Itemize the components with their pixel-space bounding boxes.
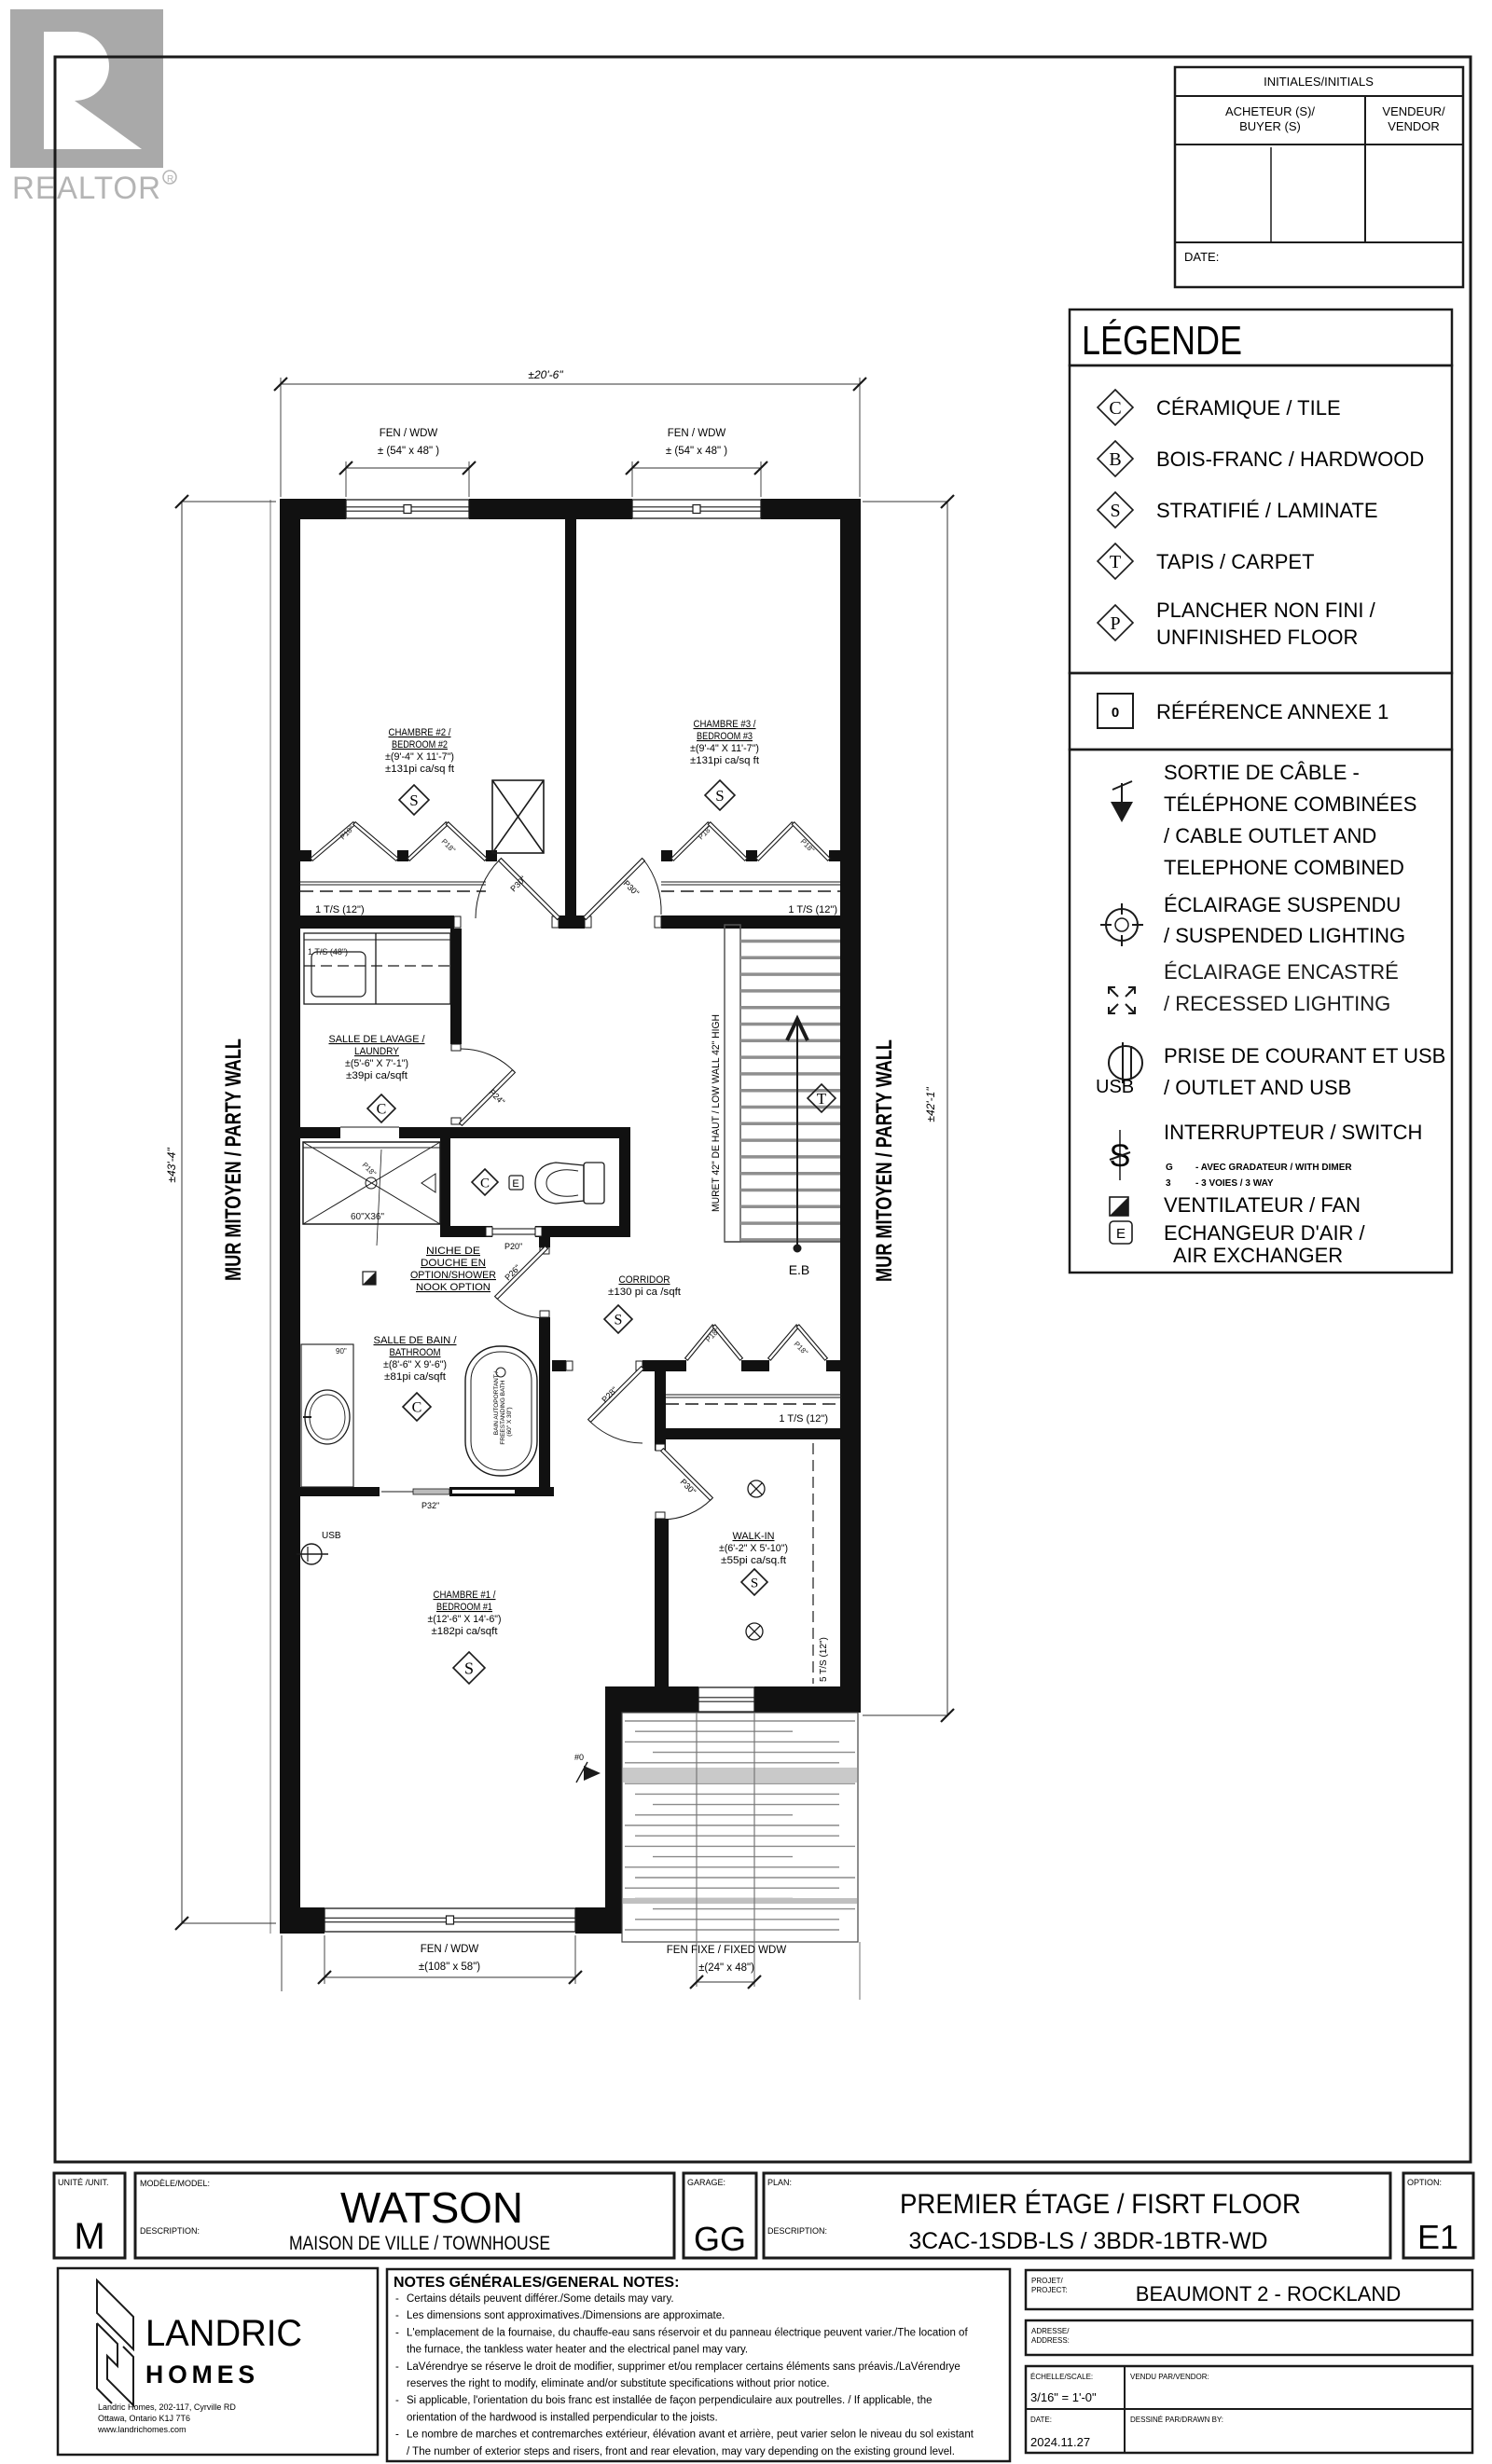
svg-text:CORRIDOR: CORRIDOR — [619, 1274, 670, 1286]
svg-text:5 T/S (12"): 5 T/S (12") — [819, 1637, 829, 1682]
svg-text:DOUCHE EN: DOUCHE EN — [421, 1258, 486, 1269]
svg-text:0: 0 — [1112, 705, 1119, 721]
svg-text:LANDRIC: LANDRIC — [145, 2313, 302, 2354]
svg-text:FEN / WDW: FEN / WDW — [380, 428, 438, 439]
svg-text:/ CABLE OUTLET AND: / CABLE OUTLET AND — [1164, 824, 1376, 847]
svg-text:-: - — [395, 2430, 399, 2441]
svg-text:Ottawa, Ontario K1J 7T6: Ottawa, Ontario K1J 7T6 — [98, 2414, 190, 2423]
svg-text:RÉFÉRENCE ANNEXE 1: RÉFÉRENCE ANNEXE 1 — [1156, 700, 1388, 723]
svg-text:Landric Homes, 202-117, Cyrvil: Landric Homes, 202-117, Cyrville RD — [98, 2402, 236, 2412]
svg-text:MURET 42" DE HAUT / LOW WALL 4: MURET 42" DE HAUT / LOW WALL 42" HIGH — [711, 1014, 722, 1212]
svg-text:/ SUSPENDED LIGHTING: / SUSPENDED LIGHTING — [1164, 924, 1405, 947]
svg-text:G: G — [1166, 1163, 1173, 1173]
svg-text:VENDOR: VENDOR — [1388, 119, 1440, 133]
svg-text:FREESTANDING BATH: FREESTANDING BATH — [500, 1380, 506, 1444]
svg-text:±(108" x 58"): ±(108" x 58") — [419, 1962, 480, 1973]
svg-text:-: - — [395, 2293, 399, 2305]
svg-text:±182pi ca/sqft: ±182pi ca/sqft — [432, 1626, 498, 1637]
svg-text:DESSINÉ PAR/DRAWN BY:: DESSINÉ PAR/DRAWN BY: — [1130, 2416, 1223, 2424]
svg-text:AIR EXCHANGER: AIR EXCHANGER — [1173, 1244, 1343, 1267]
svg-text:/ The number of exterior steps: / The number of exterior steps and riser… — [407, 2446, 955, 2457]
svg-text:/ RECESSED LIGHTING: / RECESSED LIGHTING — [1164, 992, 1390, 1015]
svg-text:VENTILATEUR / FAN: VENTILATEUR / FAN — [1164, 1193, 1361, 1217]
svg-text:BEDROOM #3: BEDROOM #3 — [697, 731, 753, 742]
svg-text:±20'-6": ±20'-6" — [528, 368, 563, 381]
svg-text:-: - — [395, 2361, 399, 2373]
svg-text:SORTIE DE CÂBLE -: SORTIE DE CÂBLE - — [1164, 761, 1360, 784]
svg-text:-: - — [395, 2310, 399, 2321]
svg-text:GG: GG — [694, 2220, 746, 2258]
svg-text:M: M — [74, 2216, 104, 2257]
svg-text:T: T — [1110, 552, 1121, 572]
svg-text:NOTES GÉNÉRALES/GENERAL NOTES:: NOTES GÉNÉRALES/GENERAL NOTES: — [394, 2273, 679, 2291]
svg-text:HOMES: HOMES — [145, 2361, 259, 2388]
svg-text:OPTION/SHOWER: OPTION/SHOWER — [410, 1270, 496, 1281]
svg-text:±131pi ca/sq ft: ±131pi ca/sq ft — [385, 764, 454, 775]
svg-text:2024.11.27: 2024.11.27 — [1030, 2435, 1090, 2449]
svg-text:orientation of the hardwood is: orientation of the hardwood is installed… — [407, 2412, 718, 2423]
svg-text:TÉLÉPHONE COMBINÉES: TÉLÉPHONE COMBINÉES — [1164, 792, 1416, 816]
svg-text:S: S — [615, 1313, 623, 1328]
svg-text:1 T/S (12"): 1 T/S (12") — [788, 904, 837, 915]
svg-text:1 T/S (48"): 1 T/S (48") — [308, 947, 348, 957]
svg-text:E: E — [512, 1178, 518, 1190]
svg-text:USB: USB — [322, 1531, 341, 1541]
svg-text:C: C — [480, 1176, 490, 1191]
svg-text:±(9'-4" X 11'-7"): ±(9'-4" X 11'-7") — [690, 743, 759, 754]
svg-text:OPTION:: OPTION: — [1407, 2178, 1442, 2187]
svg-text:±81pi ca/sqft: ±81pi ca/sqft — [384, 1371, 446, 1383]
svg-text:PREMIER ÉTAGE / FISRT FLOOR: PREMIER ÉTAGE / FISRT FLOOR — [900, 2189, 1301, 2220]
svg-text:#0: #0 — [574, 1753, 584, 1762]
svg-text:CHAMBRE #3 /: CHAMBRE #3 / — [694, 719, 757, 730]
svg-text:ECHANGEUR D'AIR /: ECHANGEUR D'AIR / — [1164, 1221, 1366, 1245]
svg-text:DESCRIPTION:: DESCRIPTION: — [767, 2226, 827, 2236]
svg-text:INITIALES/INITIALS: INITIALES/INITIALS — [1264, 75, 1374, 89]
svg-text:ACHETEUR (S)/: ACHETEUR (S)/ — [1225, 104, 1315, 118]
svg-text:BOIS-FRANC / HARDWOOD: BOIS-FRANC / HARDWOOD — [1156, 447, 1424, 471]
svg-text:the furnace, the tankless wate: the furnace, the tankless water heater a… — [407, 2345, 748, 2356]
svg-text:reserves the right to modify,: reserves the right to modify, eliminate … — [407, 2378, 830, 2389]
svg-text:±(9'-4" X 11'-7"): ±(9'-4" X 11'-7") — [385, 751, 454, 763]
svg-text:LÉGENDE: LÉGENDE — [1082, 318, 1242, 364]
svg-text:±(6'-2" X 5'-10"): ±(6'-2" X 5'-10") — [719, 1543, 788, 1554]
svg-text:C: C — [412, 1400, 422, 1416]
svg-text:MAISON DE VILLE / TOWNHOUSE: MAISON DE VILLE / TOWNHOUSE — [289, 2233, 550, 2254]
svg-text:LaVérendrye se réserve le droi: LaVérendrye se réserve le droit de modif… — [407, 2361, 960, 2373]
svg-text:1 T/S (12"): 1 T/S (12") — [315, 904, 365, 915]
svg-text:FEN FIXE / FIXED WDW: FEN FIXE / FIXED WDW — [667, 1945, 787, 1956]
svg-text:ÉCHELLE/SCALE:: ÉCHELLE/SCALE: — [1030, 2373, 1093, 2381]
svg-text:1 T/S (12"): 1 T/S (12") — [779, 1413, 828, 1425]
svg-text:MUR MITOYEN / PARTY WALL: MUR MITOYEN / PARTY WALL — [221, 1039, 246, 1281]
svg-text:- AVEC GRADATEUR / WITH DIMER: - AVEC GRADATEUR / WITH DIMER — [1195, 1163, 1352, 1173]
svg-text:BEDROOM #1: BEDROOM #1 — [436, 1602, 492, 1613]
svg-text:UNFINISHED FLOOR: UNFINISHED FLOOR — [1156, 626, 1358, 649]
svg-text:L'emplacement de la fournaise,: L'emplacement de la fournaise, du chauff… — [407, 2327, 968, 2338]
svg-text:DATE:: DATE: — [1184, 250, 1219, 264]
svg-text:C: C — [1109, 398, 1121, 419]
svg-text:FEN / WDW: FEN / WDW — [668, 428, 726, 439]
svg-text:-: - — [395, 2327, 399, 2338]
svg-text:± (54" x 48" ): ± (54" x 48" ) — [666, 446, 727, 457]
svg-text:- 3 VOIES / 3 WAY: - 3 VOIES / 3 WAY — [1195, 1178, 1274, 1189]
svg-text:±43'-4": ±43'-4" — [165, 1148, 178, 1183]
svg-text:TELEPHONE COMBINED: TELEPHONE COMBINED — [1164, 856, 1404, 879]
svg-text:S: S — [409, 792, 418, 809]
svg-text:GARAGE:: GARAGE: — [687, 2178, 725, 2187]
svg-text:VENDU PAR/VENDOR:: VENDU PAR/VENDOR: — [1130, 2373, 1209, 2381]
svg-text:B: B — [1109, 449, 1121, 470]
svg-text:LAUNDRY: LAUNDRY — [354, 1046, 400, 1057]
svg-text:PROJECT:: PROJECT: — [1031, 2286, 1068, 2294]
svg-text:± (54" x 48" ): ± (54" x 48" ) — [378, 446, 439, 457]
svg-text:BEDROOM #2: BEDROOM #2 — [392, 739, 448, 750]
svg-text:WALK-IN: WALK-IN — [733, 1531, 775, 1542]
svg-text:PLAN:: PLAN: — [767, 2178, 792, 2187]
svg-text:-: - — [395, 2395, 399, 2406]
svg-text:±(24" x 48"): ±(24" x 48") — [698, 1962, 754, 1974]
svg-text:NICHE DE: NICHE DE — [426, 1246, 480, 1257]
svg-text:FEN / WDW: FEN / WDW — [421, 1944, 479, 1955]
svg-text:INTERRUPTEUR / SWITCH: INTERRUPTEUR / SWITCH — [1164, 1121, 1422, 1144]
svg-text:BUYER (S): BUYER (S) — [1239, 119, 1301, 133]
svg-text:±(5'-6" X 7'-1"): ±(5'-6" X 7'-1") — [345, 1058, 408, 1069]
svg-text:UNITÉ /UNIT.: UNITÉ /UNIT. — [58, 2178, 109, 2187]
svg-text:S: S — [715, 787, 724, 805]
svg-text:S: S — [1110, 501, 1120, 521]
svg-text:E.B: E.B — [789, 1262, 810, 1277]
svg-text:PROJET/: PROJET/ — [1031, 2277, 1064, 2285]
svg-text:3CAC-1SDB-LS / 3BDR-1BTR-WD: 3CAC-1SDB-LS / 3BDR-1BTR-WD — [909, 2228, 1268, 2254]
svg-text:60"X36": 60"X36" — [351, 1212, 384, 1222]
svg-text:P20": P20" — [504, 1242, 522, 1251]
svg-text:T: T — [817, 1090, 827, 1108]
svg-text:±(12'-6" X 14'-6"): ±(12'-6" X 14'-6") — [428, 1614, 502, 1625]
svg-text:(60" X 30"): (60" X 30") — [506, 1407, 513, 1436]
svg-text:CHAMBRE #1 /: CHAMBRE #1 / — [434, 1590, 497, 1601]
svg-text:SALLE DE LAVAGE /: SALLE DE LAVAGE / — [329, 1034, 426, 1045]
svg-text:S: S — [464, 1659, 474, 1677]
svg-text:±42'-1": ±42'-1" — [924, 1087, 937, 1122]
svg-text:www.landrichomes.com: www.landrichomes.com — [97, 2425, 186, 2434]
svg-text:PLANCHER NON FINI /: PLANCHER NON FINI / — [1156, 599, 1376, 622]
svg-text:PRISE DE COURANT ET USB: PRISE DE COURANT ET USB — [1164, 1044, 1445, 1067]
svg-text:P: P — [1110, 613, 1120, 634]
svg-text:±39pi ca/sqft: ±39pi ca/sqft — [346, 1070, 408, 1081]
svg-text:CÉRAMIQUE / TILE: CÉRAMIQUE / TILE — [1156, 396, 1341, 420]
svg-text:SALLE DE BAIN /: SALLE DE BAIN / — [374, 1335, 458, 1346]
svg-text:3/16" = 1'-0": 3/16" = 1'-0" — [1030, 2390, 1097, 2404]
svg-text:MODÈLE/MODEL:: MODÈLE/MODEL: — [140, 2179, 210, 2188]
svg-text:ADDRESS:: ADDRESS: — [1031, 2336, 1070, 2345]
svg-text:E1: E1 — [1417, 2218, 1458, 2256]
svg-text:ÉCLAIRAGE SUSPENDU: ÉCLAIRAGE SUSPENDU — [1164, 893, 1401, 916]
svg-text:STRATIFIÉ / LAMINATE: STRATIFIÉ / LAMINATE — [1156, 499, 1378, 522]
svg-text:Si applicable, l'orientation d: Si applicable, l'orientation du bois fra… — [407, 2395, 932, 2406]
svg-text:C: C — [377, 1102, 387, 1118]
svg-text:P32": P32" — [421, 1501, 439, 1510]
svg-text:90": 90" — [336, 1347, 347, 1356]
svg-text:BATHROOM: BATHROOM — [390, 1347, 441, 1358]
svg-text:BEAUMONT 2 - ROCKLAND: BEAUMONT 2 - ROCKLAND — [1136, 2282, 1401, 2306]
svg-text:REALTOR: REALTOR — [12, 171, 161, 206]
svg-text:±131pi ca/sq ft: ±131pi ca/sq ft — [690, 755, 759, 766]
svg-text:WATSON: WATSON — [340, 2183, 523, 2232]
svg-text:DESCRIPTION:: DESCRIPTION: — [140, 2226, 200, 2236]
svg-text:E: E — [1116, 1226, 1126, 1242]
svg-text:±130 pi ca /sqft: ±130 pi ca /sqft — [608, 1287, 681, 1298]
svg-text:BAIN AUTOPORTANT /: BAIN AUTOPORTANT / — [493, 1371, 500, 1436]
svg-text:USB: USB — [1096, 1077, 1134, 1097]
svg-text:Les dimensions sont approximat: Les dimensions sont approximatives./Dime… — [407, 2310, 725, 2321]
svg-text:ADRESSE/: ADRESSE/ — [1031, 2327, 1070, 2335]
svg-text:NOOK OPTION: NOOK OPTION — [416, 1282, 490, 1293]
svg-text:R: R — [167, 174, 173, 185]
svg-text:MUR MITOYEN / PARTY WALL: MUR MITOYEN / PARTY WALL — [872, 1039, 897, 1282]
svg-text:S: S — [751, 1576, 758, 1590]
svg-text:DATE:: DATE: — [1030, 2416, 1052, 2424]
svg-text:VENDEUR/: VENDEUR/ — [1382, 104, 1445, 118]
svg-text:CHAMBRE #2 /: CHAMBRE #2 / — [389, 727, 452, 738]
svg-text:Le nombre de marches et contre: Le nombre de marches et contremarches ex… — [407, 2430, 974, 2441]
svg-text:/ OUTLET AND USB: / OUTLET AND USB — [1164, 1076, 1351, 1099]
svg-text:TAPIS / CARPET: TAPIS / CARPET — [1156, 550, 1315, 573]
svg-text:±(8'-6" X 9'-6"): ±(8'-6" X 9'-6") — [383, 1359, 447, 1370]
svg-text:±55pi ca/sq.ft: ±55pi ca/sq.ft — [721, 1555, 786, 1566]
svg-text:ÉCLAIRAGE ENCASTRÉ: ÉCLAIRAGE ENCASTRÉ — [1164, 960, 1399, 984]
svg-text:3: 3 — [1166, 1178, 1171, 1189]
svg-text:Certains détails peuvent diffé: Certains détails peuvent différer./Some … — [407, 2293, 674, 2305]
